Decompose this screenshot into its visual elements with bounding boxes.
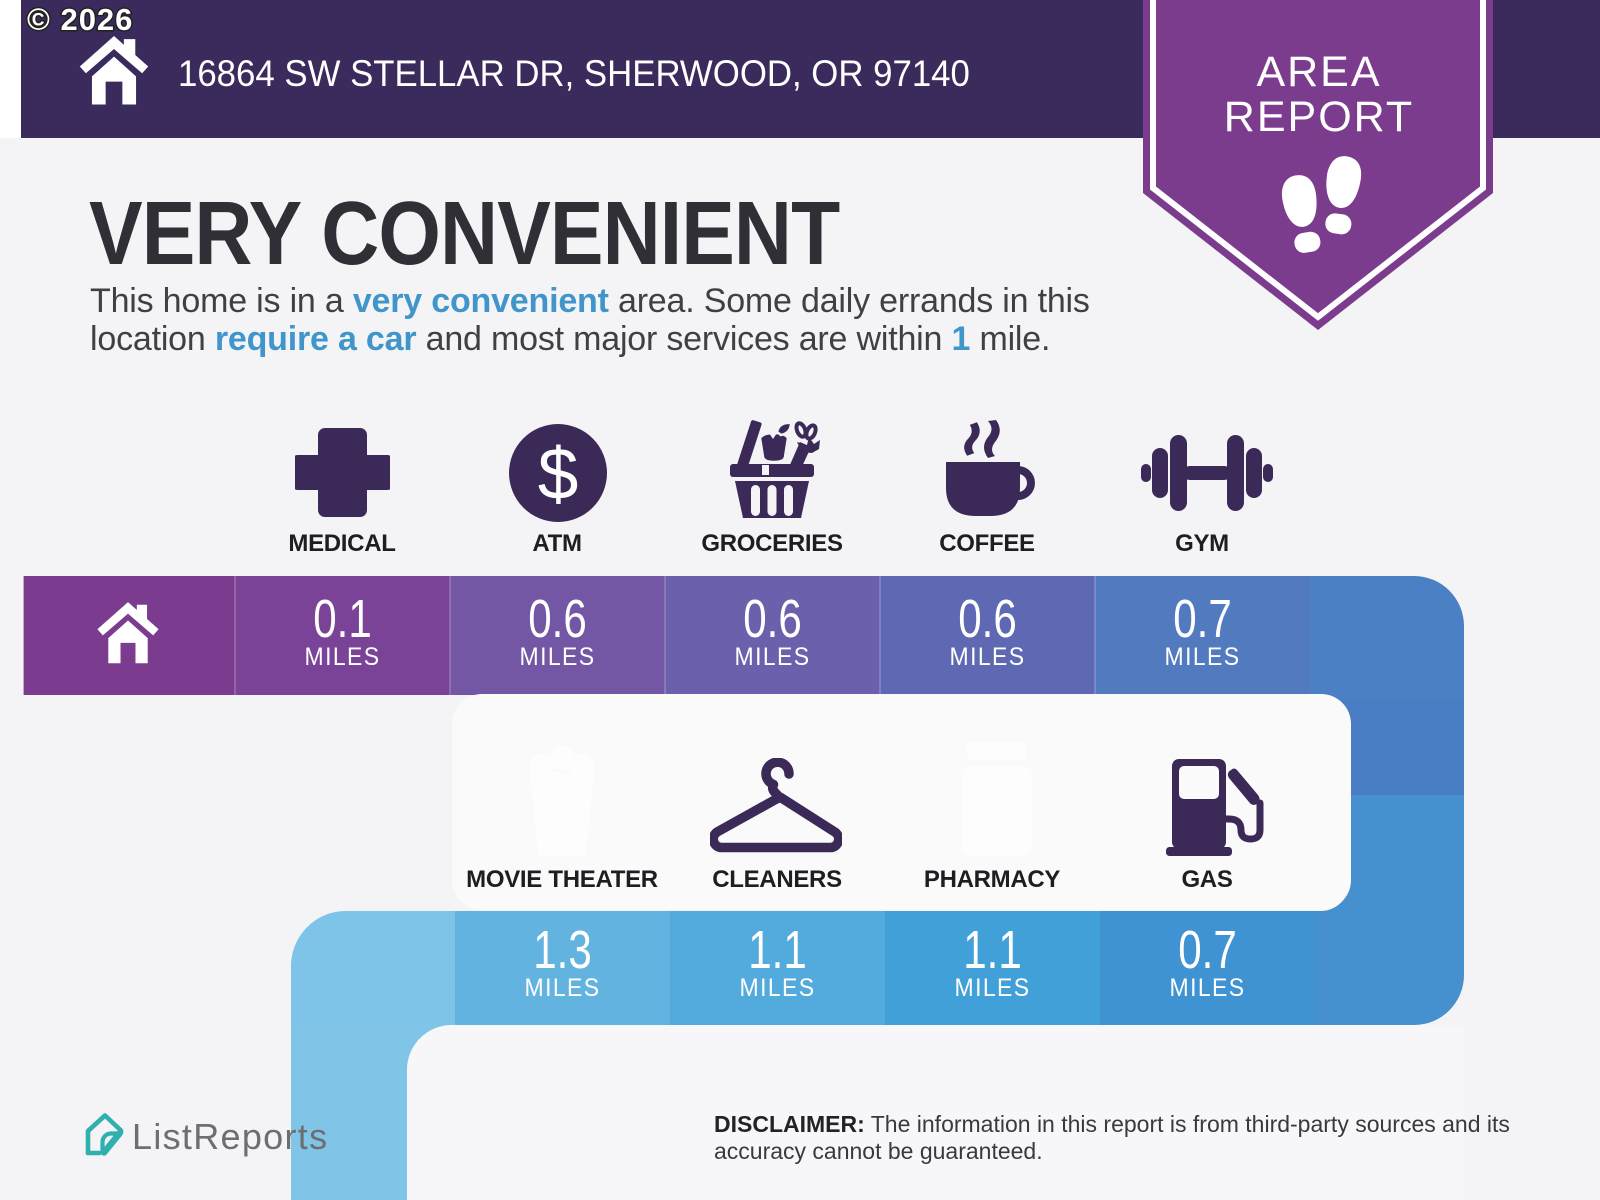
svg-text:$: $ xyxy=(538,434,579,515)
svg-text:REPORT: REPORT xyxy=(1224,93,1414,141)
svg-text:AREA: AREA xyxy=(1256,48,1381,96)
